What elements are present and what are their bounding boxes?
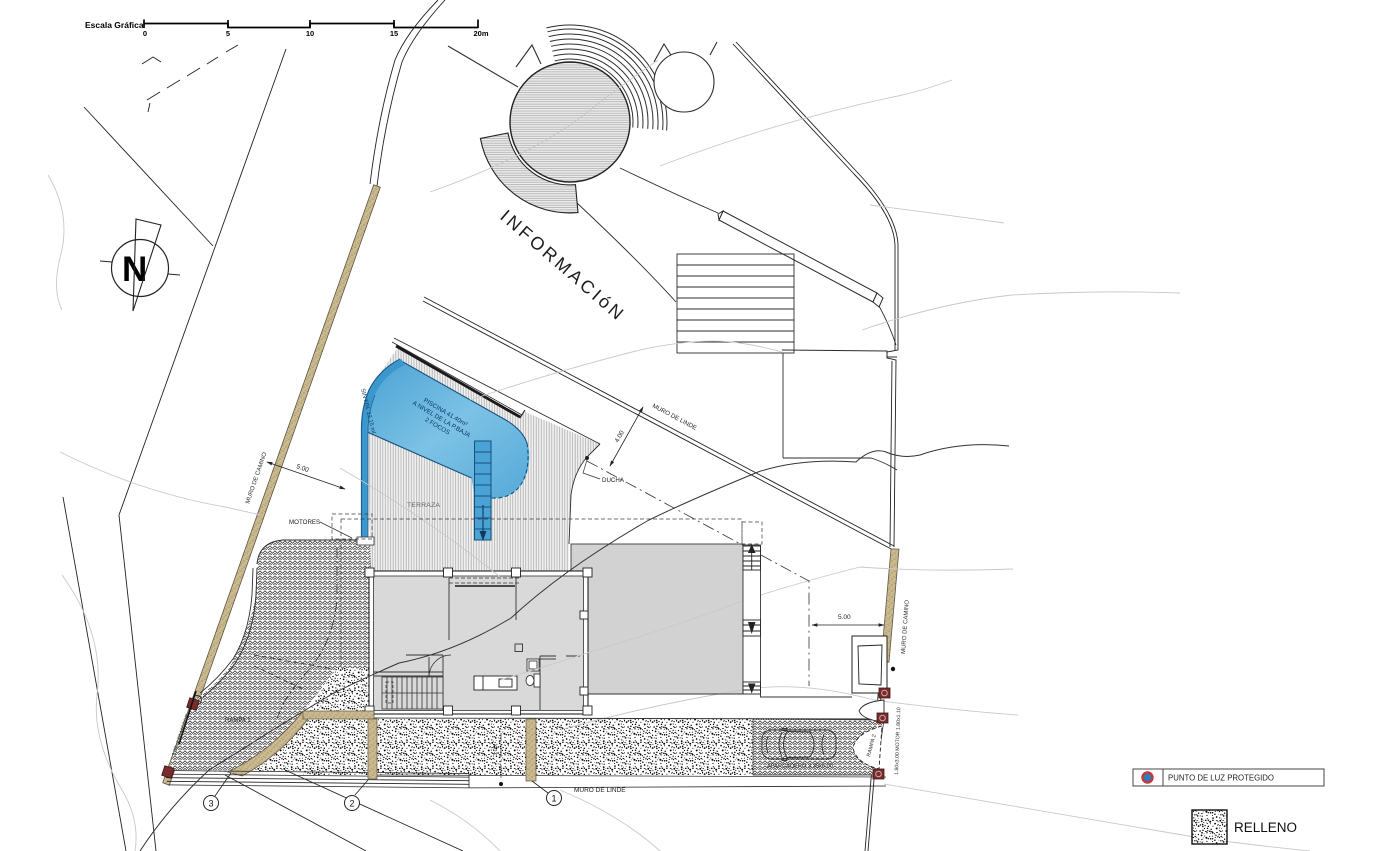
svg-text:PUNTO DE LUZ PROTEGIDO: PUNTO DE LUZ PROTEGIDO (1168, 774, 1274, 783)
svg-text:1: 1 (551, 794, 556, 804)
svg-text:2: 2 (349, 799, 354, 809)
svg-text:5.00: 5.00 (838, 614, 851, 621)
svg-text:20m: 20m (473, 29, 488, 38)
svg-text:RELLENO: RELLENO (1234, 820, 1297, 835)
svg-text:3: 3 (208, 799, 213, 809)
svg-text:MURO DE LINDE: MURO DE LINDE (574, 787, 626, 794)
svg-text:0: 0 (143, 29, 147, 38)
svg-text:TERRAZA: TERRAZA (407, 502, 440, 509)
svg-text:3.00: 3.00 (493, 745, 499, 756)
svg-text:MURO DE CAMINO: MURO DE CAMINO (901, 600, 911, 655)
svg-text:RAMPA 1: RAMPA 1 (225, 718, 251, 724)
svg-text:5: 5 (226, 29, 230, 38)
svg-text:APARCADERO 3.35x6.00: APARCADERO 3.35x6.00 (767, 764, 833, 770)
svg-text:MOTORES: MOTORES (289, 519, 320, 526)
svg-text:MURO DE LINDE: MURO DE LINDE (651, 403, 698, 432)
svg-text:INFORMACIóN: INFORMACIóN (496, 206, 629, 326)
svg-text:4.00: 4.00 (614, 429, 626, 444)
svg-text:1.80x3.00 MOTOR 1.80x1.10: 1.80x3.00 MOTOR 1.80x1.10 (894, 707, 902, 775)
svg-text:DUCHA: DUCHA (602, 477, 625, 484)
svg-text:Escala Gráfica: Escala Gráfica (85, 20, 144, 30)
svg-text:10: 10 (306, 29, 314, 38)
svg-text:15: 15 (390, 29, 398, 38)
